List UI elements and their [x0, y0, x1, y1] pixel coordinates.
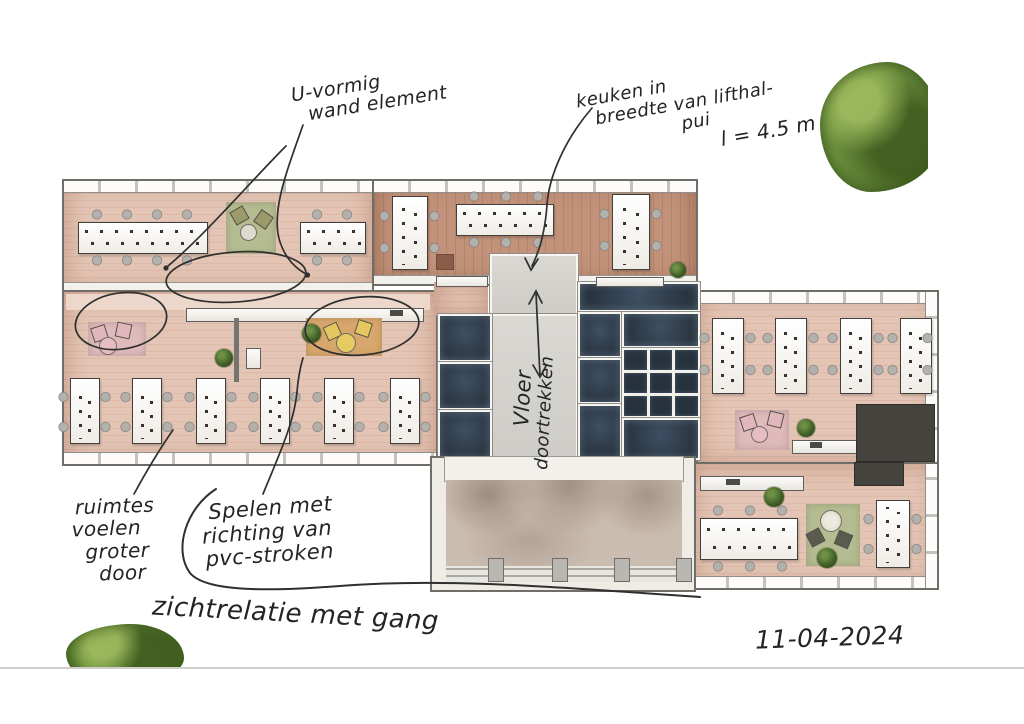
- chair-column: [353, 382, 366, 440]
- tree-top-right: [816, 60, 928, 196]
- sideboard-counter: [700, 476, 804, 491]
- chair-row: [302, 208, 362, 221]
- round-table: [99, 337, 117, 355]
- chair-column: [872, 322, 885, 386]
- desk: [876, 500, 910, 568]
- annotation-line: ruimtes: [74, 494, 154, 519]
- plant: [797, 419, 815, 437]
- desk: [390, 378, 420, 444]
- annotation-line: door: [99, 561, 157, 585]
- chair-row: [702, 560, 798, 573]
- partition-wall: [234, 318, 239, 382]
- lounge-chair: [115, 322, 133, 340]
- plant: [215, 349, 233, 367]
- desk-bench: [300, 222, 366, 254]
- annotation-vloer-doortrekken: Vloer doortrekken: [508, 308, 560, 470]
- chair-column: [161, 382, 174, 440]
- chair-row: [82, 208, 202, 221]
- annotation-spelen-pvc-stroken: Spelen met richting van pvc-stroken: [200, 492, 337, 572]
- chair-column: [119, 382, 132, 440]
- chair-column: [598, 198, 611, 262]
- chair-row: [458, 236, 554, 249]
- plant: [817, 548, 837, 568]
- plant: [670, 262, 686, 278]
- round-table: [751, 426, 768, 443]
- locker-grid: [622, 348, 700, 418]
- sketch-page: U-vormig wand element keuken in breedte …: [0, 0, 1024, 724]
- chair-column: [650, 198, 663, 262]
- chair-column: [247, 382, 260, 440]
- chair-column: [910, 504, 923, 564]
- desk: [324, 378, 354, 444]
- chair-column: [57, 382, 70, 440]
- chair-column: [289, 382, 302, 440]
- counter-item: [810, 442, 822, 448]
- core-cell: [622, 312, 700, 348]
- desk-bench: [456, 204, 554, 236]
- desk: [70, 378, 100, 444]
- window-band: [692, 576, 937, 588]
- chair-column: [886, 322, 899, 386]
- core-cell: [622, 418, 700, 460]
- chair-column: [99, 382, 112, 440]
- desk: [712, 318, 744, 394]
- window-band-right: [925, 464, 937, 588]
- window-band: [698, 292, 937, 304]
- dark-closet: [854, 462, 904, 486]
- desk: [260, 378, 290, 444]
- mullion: [676, 558, 692, 582]
- desk: [775, 318, 807, 394]
- plant: [302, 324, 321, 343]
- core-bench: [596, 277, 664, 287]
- core-cell: [438, 314, 492, 362]
- chair-column: [428, 200, 441, 264]
- chair-column: [862, 504, 875, 564]
- dark-closet: [856, 404, 935, 462]
- counter-item: [726, 479, 740, 485]
- chair-row: [702, 504, 798, 517]
- desk: [840, 318, 872, 394]
- atrium-slab: [444, 456, 684, 482]
- round-table: [240, 224, 257, 241]
- annotation-line: 11-04-2024: [755, 621, 905, 654]
- chair-column: [225, 382, 238, 440]
- chair-column: [378, 200, 391, 264]
- window-band: [64, 452, 436, 464]
- sideboard-counter: [186, 308, 424, 322]
- chair-column: [377, 382, 390, 440]
- chair-row: [82, 254, 202, 267]
- atrium-floor: [446, 480, 682, 568]
- chair-column: [311, 382, 324, 440]
- annotation-date: 11-04-2024: [755, 621, 905, 654]
- mullion: [552, 558, 568, 582]
- round-table: [336, 333, 356, 353]
- tree-bottom-left: [64, 618, 188, 667]
- page-bottom-divider: [0, 667, 1024, 669]
- counter-item: [390, 310, 403, 316]
- mullion: [614, 558, 630, 582]
- side-table: [246, 348, 261, 369]
- pantry-nook: [434, 282, 488, 316]
- desk: [392, 196, 428, 270]
- desk: [132, 378, 162, 444]
- desk-bench: [78, 222, 208, 254]
- core-cell: [438, 410, 492, 460]
- annotation-ruimtes-voelen-groter: ruimtes voelen groter door: [70, 494, 156, 586]
- core-cell: [578, 312, 622, 358]
- window-band: [64, 181, 372, 193]
- core-cell: [438, 362, 492, 410]
- chair-column: [826, 322, 839, 386]
- chair-column: [807, 322, 820, 386]
- chair-column: [761, 322, 774, 386]
- desk: [612, 194, 650, 270]
- core-cell: [578, 358, 622, 404]
- chair-row: [302, 254, 362, 267]
- desk-bench: [700, 518, 798, 560]
- pantry-counter: [436, 276, 488, 287]
- chair-column: [698, 322, 711, 386]
- chair-column: [419, 382, 432, 440]
- chair-column: [921, 322, 934, 386]
- chair-column: [183, 382, 196, 440]
- mullion: [488, 558, 504, 582]
- chair-row: [458, 190, 554, 203]
- core-cell: [578, 404, 622, 460]
- chair-column: [744, 322, 757, 386]
- vestibule: [490, 254, 578, 316]
- desk: [196, 378, 226, 444]
